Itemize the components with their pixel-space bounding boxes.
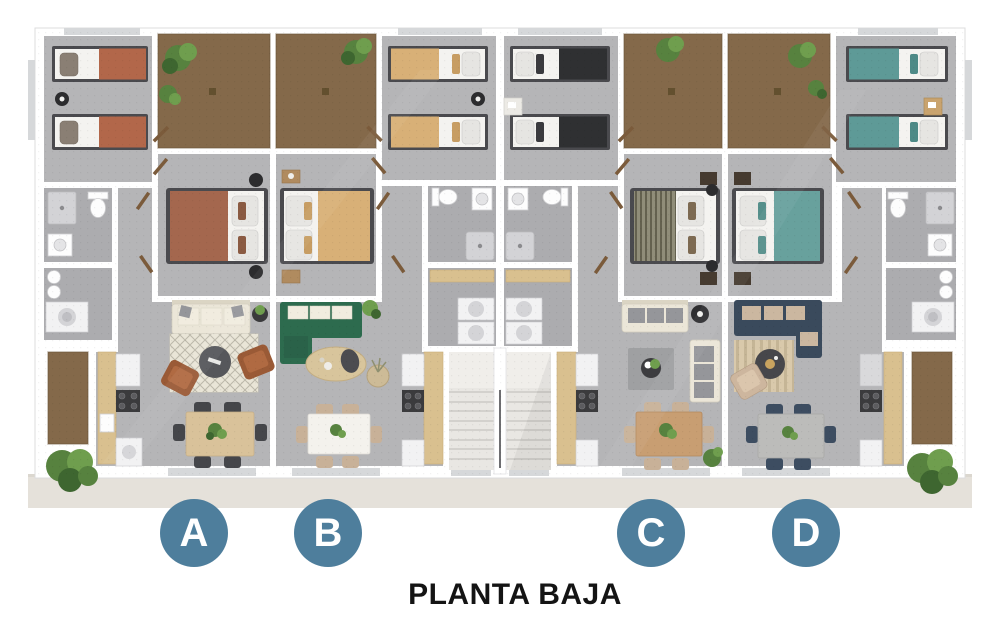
floor-plan-image: A B C D PLANTA BAJA: [0, 0, 1000, 633]
unit-label-d: D: [792, 511, 821, 556]
unit-label-b: B: [314, 511, 343, 556]
unit-label-c: C: [637, 511, 666, 556]
unit-label-a: A: [180, 511, 209, 556]
building-base: [28, 474, 972, 508]
unit-badge-a: A: [160, 499, 228, 567]
unit-badge-b: B: [294, 499, 362, 567]
page-title: PLANTA BAJA: [15, 578, 1000, 612]
floor-plan: [0, 0, 1000, 633]
unit-badge-d: D: [772, 499, 840, 567]
unit-badge-c: C: [617, 499, 685, 567]
